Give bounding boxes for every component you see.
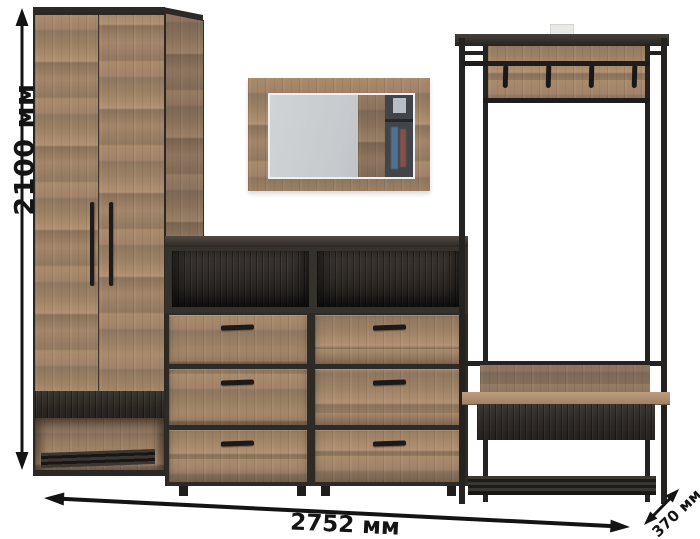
dresser-open-shelf-left xyxy=(172,251,309,307)
bench-backrest xyxy=(480,365,650,392)
coat-rack-header-bottom-bar xyxy=(483,98,650,103)
coat-rack-side-bar-left xyxy=(459,51,488,55)
drawer-handle xyxy=(373,379,406,385)
wall-mirror xyxy=(248,78,430,191)
mirror-reflection-interior xyxy=(385,95,413,177)
bench-bottom-shelf xyxy=(468,476,656,495)
dresser-drawer xyxy=(169,430,307,482)
coat-hook xyxy=(546,66,552,88)
mirror-glass xyxy=(268,93,415,179)
dresser-open-shelf-right xyxy=(317,251,461,307)
drawer-handle xyxy=(221,379,254,385)
wardrobe-right-door-handle xyxy=(109,202,113,286)
coat-hook xyxy=(632,66,638,88)
mirror-reflection-item xyxy=(393,98,406,113)
dresser-body xyxy=(165,313,468,486)
coat-rack-header-panel xyxy=(488,46,645,100)
drawer-handle xyxy=(373,324,406,330)
dresser-drawer xyxy=(315,430,464,482)
dresser-foot xyxy=(297,486,306,496)
wardrobe-front xyxy=(33,12,166,476)
mirror-reflection-garment-red xyxy=(400,129,406,167)
dresser-foot xyxy=(321,486,330,496)
coat-rack-side-bar-right xyxy=(645,51,667,55)
coat-rack-rail xyxy=(463,61,650,66)
drawer-handle xyxy=(221,324,254,330)
coat-rack xyxy=(455,24,669,504)
width-dimension-label: 2752 мм xyxy=(265,510,426,539)
mirror-reflection-wardrobe-door xyxy=(358,95,385,177)
bench-apron xyxy=(477,404,655,440)
mirror-reflection-shelf xyxy=(385,119,413,122)
wardrobe-shoe-shelf xyxy=(41,449,155,468)
coat-hook xyxy=(503,66,509,88)
coat-rack-post-left-front xyxy=(459,38,465,504)
height-dimension-label: 2100 мм xyxy=(12,70,39,230)
dresser-column-right xyxy=(315,315,464,482)
dresser xyxy=(165,236,468,498)
wardrobe-bottom-panel xyxy=(35,391,164,418)
dresser-shelf-row xyxy=(165,247,468,313)
dresser-drawer xyxy=(315,369,464,425)
wardrobe-left-door-handle xyxy=(90,202,94,286)
drawer-handle xyxy=(221,440,254,446)
dresser-drawer xyxy=(169,315,307,364)
dresser-drawer xyxy=(169,369,307,425)
coat-hook xyxy=(589,66,595,88)
coat-rack-post-right-front xyxy=(661,38,667,504)
mirror-reflection-garment-blue xyxy=(391,127,398,169)
drawer-handle xyxy=(373,440,406,446)
dresser-drawer xyxy=(315,315,464,364)
furniture-set-image: 2100 мм 2752 мм 370 мм xyxy=(0,0,700,539)
wardrobe-open-niche xyxy=(35,418,164,470)
dresser-foot xyxy=(179,486,188,496)
dresser-column-left xyxy=(169,315,307,482)
